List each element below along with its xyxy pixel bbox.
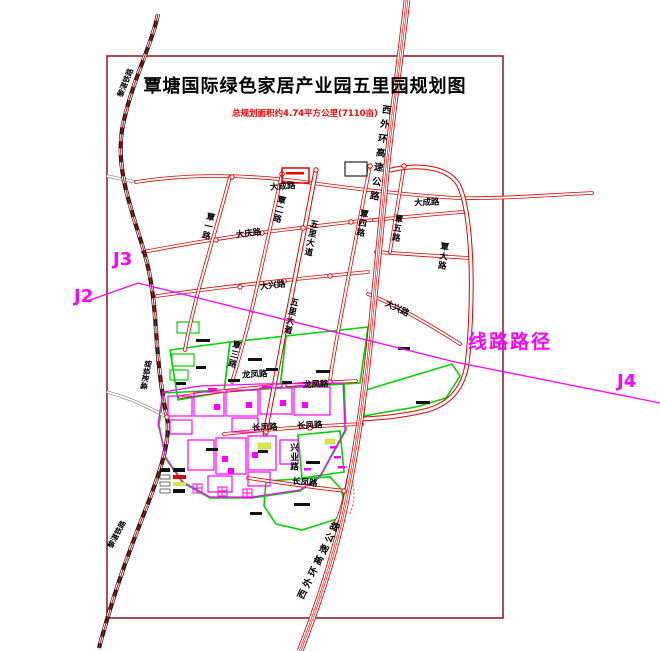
route-label: 线路路径 (468, 333, 552, 352)
road-label-xingye: 兴业路 (289, 443, 298, 472)
map-canvas (0, 0, 660, 651)
planning-map: 覃塘国际绿色家居产业园五里园规划图 总规划面积约4.74平方公里(7110亩) … (0, 0, 660, 651)
road-label-longfeng-2: 龙凤路 (303, 381, 329, 390)
road-label-changfeng-2: 长凤路 (297, 421, 323, 431)
map-title: 覃塘国际绿色家居产业园五里园规划图 (107, 78, 503, 96)
map-subtitle: 总规划面积约4.74平方公里(7110亩) (107, 110, 503, 119)
road-label-changfeng: 长凤路 (252, 423, 278, 433)
route-marker-j4: J4 (617, 373, 636, 391)
road-label-changfeng-3: 长凤路 (292, 478, 318, 489)
road-label-dacheng-2: 大成路 (414, 199, 440, 208)
map-frame (107, 56, 503, 618)
road-label-longfeng: 龙凤路 (242, 370, 268, 380)
route-marker-j2: J2 (74, 288, 93, 306)
route-marker-j3: J3 (113, 251, 132, 269)
road-label-dacheng: 大成路 (270, 182, 296, 192)
